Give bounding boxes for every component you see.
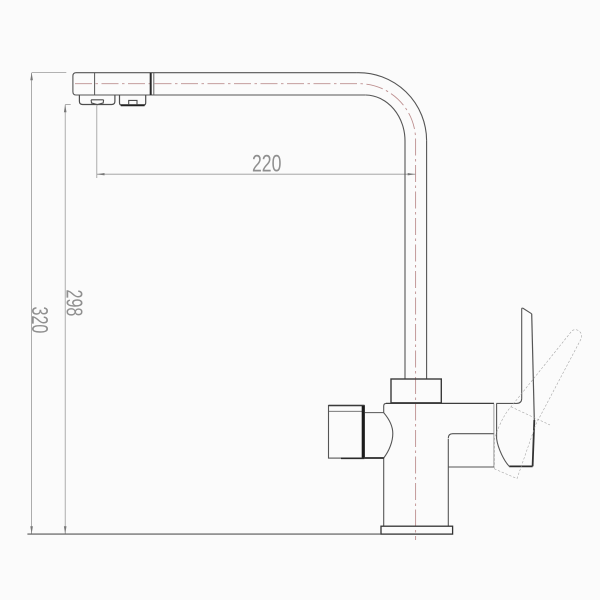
svg-text:298: 298: [61, 290, 86, 317]
svg-text:320: 320: [26, 307, 51, 334]
svg-text:220: 220: [252, 150, 282, 178]
